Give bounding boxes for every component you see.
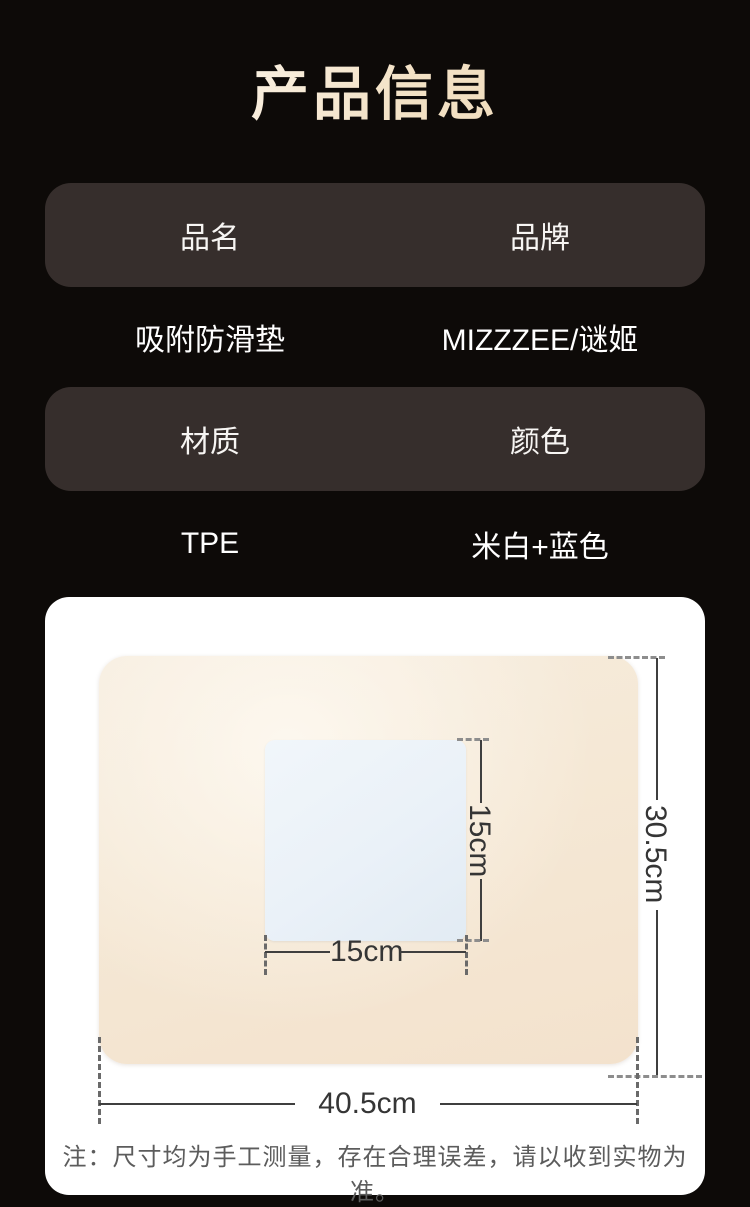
dim-tick-mat-bottom [608, 1075, 702, 1078]
dimension-figure-card: 15cm 15cm 30.5cm 40.5cm 注：尺寸均为手工测量，存在合理误… [45, 597, 705, 1195]
spec-header-material: 材质 [45, 387, 375, 491]
spec-header-brand: 品牌 [375, 183, 705, 287]
dim-label-pad-height: 15cm [464, 803, 494, 879]
dim-line-mat-height-upper [656, 658, 658, 800]
dim-label-pad-width: 15cm [330, 937, 400, 967]
spec-header-color: 颜色 [375, 387, 705, 491]
dim-label-mat-height: 30.5cm [640, 800, 670, 910]
suction-pad-photo [265, 740, 466, 941]
dim-label-mat-width: 40.5cm [295, 1089, 440, 1119]
spec-value-name: 吸附防滑垫 [45, 287, 375, 387]
spec-value-row-1: 吸附防滑垫 MIZZZEE/谜姬 [45, 287, 705, 387]
dim-tick-pad-right-end [465, 935, 468, 975]
dim-tick-mat-right-end [636, 1037, 639, 1124]
dim-line-pad-height-upper [480, 740, 482, 803]
page-title: 产品信息 [0, 0, 750, 130]
dim-line-mat-height-lower [656, 910, 658, 1077]
spec-header-row-2: 材质 颜色 [45, 387, 705, 491]
spec-value-color: 米白+蓝色 [375, 491, 705, 597]
dim-line-pad-height-lower [480, 879, 482, 941]
spec-value-material: TPE [45, 491, 375, 597]
spec-table: 品名 品牌 吸附防滑垫 MIZZZEE/谜姬 材质 颜色 TPE 米白+蓝色 [45, 183, 705, 597]
measurement-note: 注：尺寸均为手工测量，存在合理误差，请以收到实物为准。 [45, 1137, 705, 1207]
dim-tick-pad-left-end [264, 935, 267, 975]
spec-header-name: 品名 [45, 183, 375, 287]
dim-tick-pad-top [457, 738, 489, 741]
product-info-page: 产品信息 品名 品牌 吸附防滑垫 MIZZZEE/谜姬 材质 颜色 TPE 米白… [0, 0, 750, 1207]
dim-line-pad-width-right [400, 951, 466, 953]
spec-header-row-1: 品名 品牌 [45, 183, 705, 287]
dim-line-pad-width-left [265, 951, 330, 953]
spec-value-row-2: TPE 米白+蓝色 [45, 491, 705, 597]
dim-tick-pad-bottom [457, 939, 489, 942]
dim-line-mat-width-right [440, 1103, 637, 1105]
spec-value-brand: MIZZZEE/谜姬 [375, 287, 705, 387]
dim-line-mat-width-left [99, 1103, 295, 1105]
dim-tick-mat-left-end [98, 1037, 101, 1124]
